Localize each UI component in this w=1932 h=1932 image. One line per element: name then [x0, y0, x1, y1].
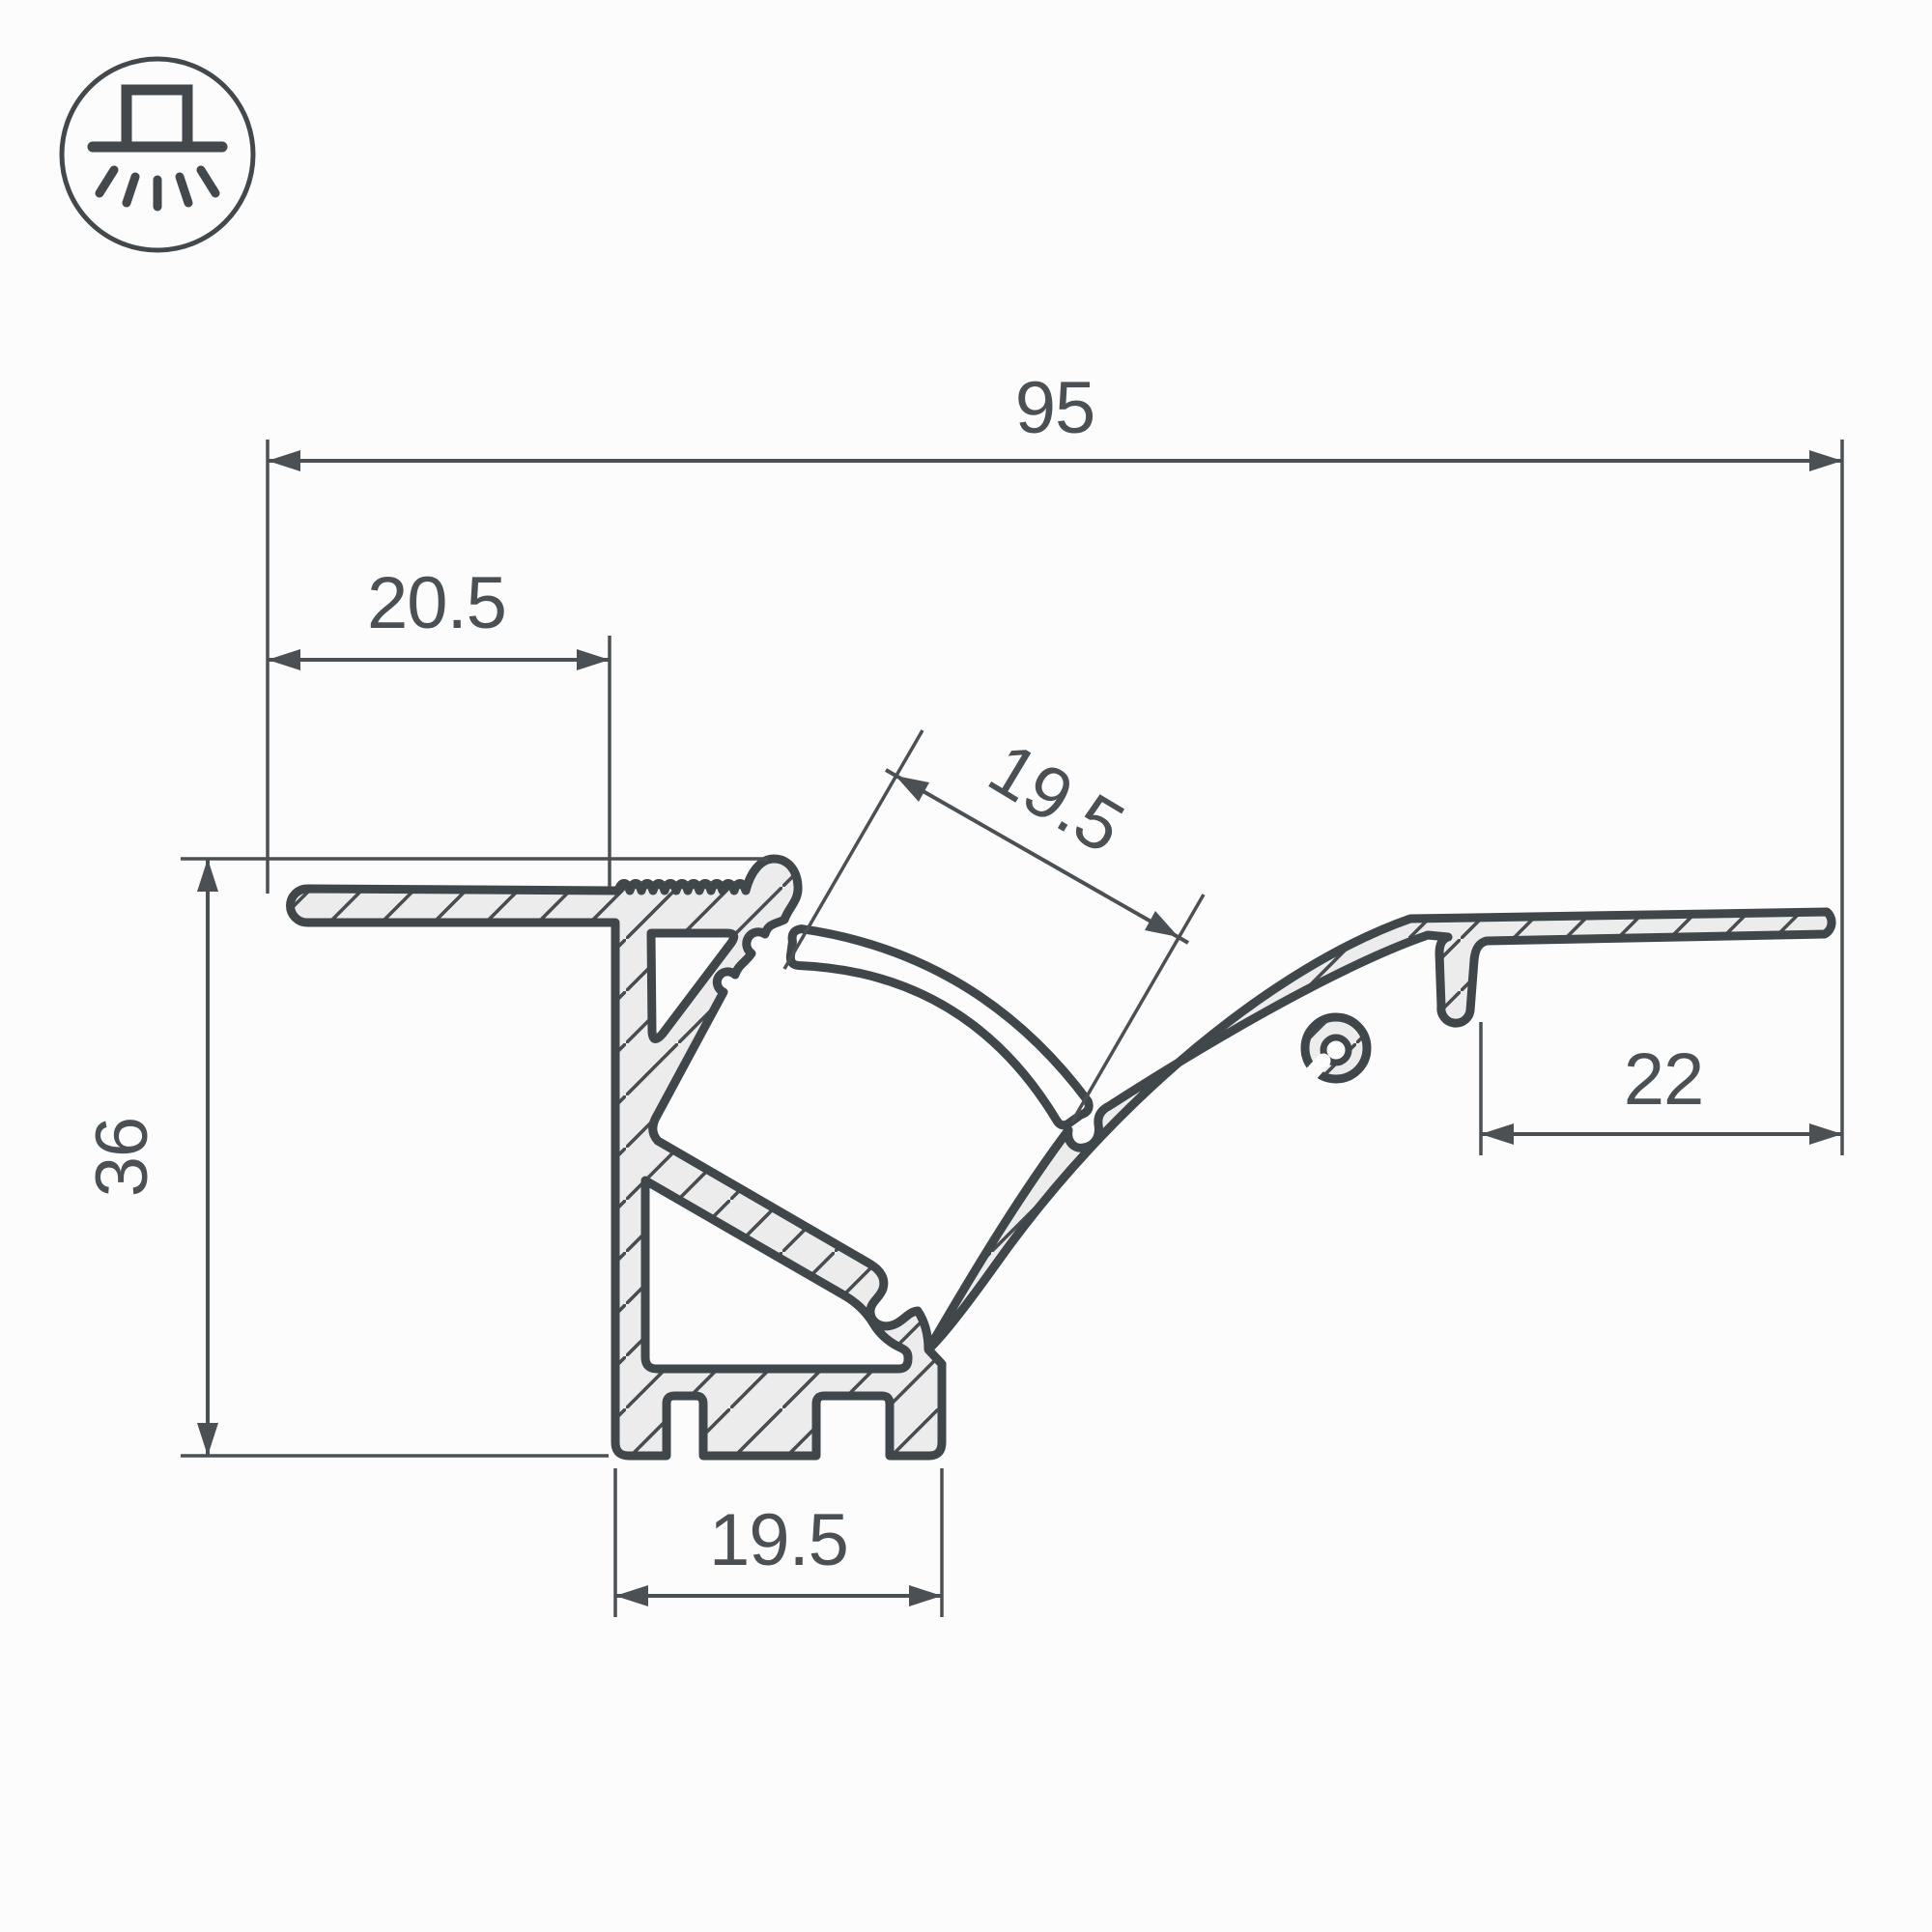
dim-left-overhang-label: 20.5 [367, 562, 506, 644]
light-rays-icon [99, 170, 215, 207]
dim-channel-width-label: 19.5 [976, 727, 1137, 869]
lens-cover [780, 896, 1109, 1132]
dim-base-width-label: 19.5 [709, 1499, 848, 1581]
profile-right-wing [928, 912, 1832, 1350]
dim-overall-height-label: 36 [81, 1118, 163, 1198]
screw-boss-slit [1300, 1061, 1323, 1086]
dim-overall-width-label: 95 [1015, 367, 1095, 449]
drawing-page: 95 20.5 19.5 36 22 [0, 0, 1932, 1932]
fixture-box-icon [127, 90, 187, 147]
dim-right-flange: 22 [1481, 1022, 1842, 1155]
profile-cross-section-drawing: 95 20.5 19.5 36 22 [0, 0, 1932, 1932]
dim-base-width: 19.5 [615, 1468, 942, 1617]
dim-right-flange-label: 22 [1624, 1038, 1704, 1121]
dim-channel-width: 19.5 [784, 727, 1204, 1122]
dim-left-overhang: 20.5 [268, 562, 610, 887]
recessed-light-icon [62, 59, 253, 250]
